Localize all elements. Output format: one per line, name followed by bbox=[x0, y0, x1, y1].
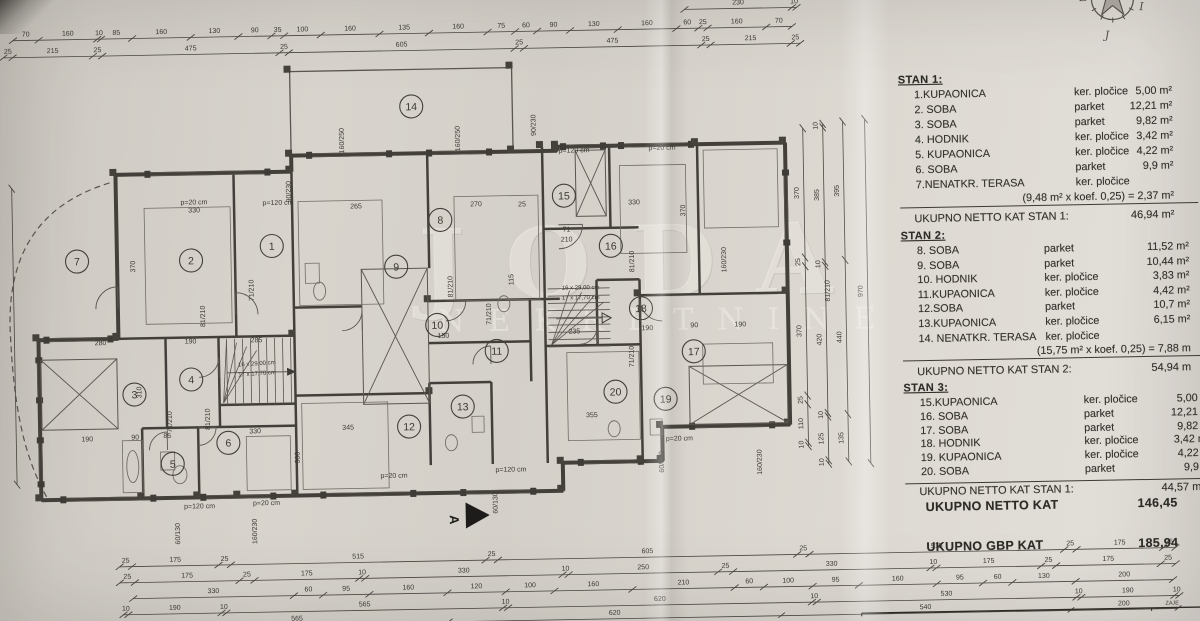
door-swing bbox=[446, 300, 466, 320]
plan-text: 120 bbox=[471, 583, 483, 590]
plan-text: p=20 cm bbox=[666, 435, 693, 442]
wall-line bbox=[544, 227, 639, 229]
stan-total-value: 46,94 m² bbox=[1131, 208, 1175, 221]
window-jamb bbox=[264, 169, 270, 176]
room-name: 8. SOBA bbox=[917, 244, 959, 257]
plan-text: 230 bbox=[732, 0, 744, 7]
wall-line bbox=[556, 318, 602, 319]
window-jamb bbox=[43, 337, 49, 344]
plan-text: 60 bbox=[745, 578, 753, 585]
plan-text: 330 bbox=[458, 567, 470, 574]
room-area: 5,00 m² bbox=[1135, 84, 1172, 97]
plan-text: 160/230 bbox=[757, 449, 764, 475]
plan-text: 150 bbox=[438, 333, 450, 340]
plan-text: 160 bbox=[587, 581, 599, 588]
plan-text: 71 bbox=[563, 227, 571, 234]
plan-text: 16 x 29,00 cm bbox=[562, 285, 600, 292]
room-area: 9,9 m² bbox=[1143, 159, 1174, 172]
furniture-outline bbox=[703, 343, 774, 384]
wall-line bbox=[429, 341, 531, 343]
total-label: UKUPNO NETTO KAT bbox=[926, 498, 1059, 514]
pillar-block bbox=[233, 491, 240, 498]
sink-fixture bbox=[305, 263, 319, 283]
furniture-outline bbox=[703, 149, 778, 228]
stan-section-1: STAN 1:1.KUPAONICAker. pločice5,00 m²2. … bbox=[898, 69, 1199, 228]
plan-text: 71/210 bbox=[167, 411, 174, 433]
svg-text:12: 12 bbox=[403, 421, 415, 433]
pillar-block bbox=[551, 141, 558, 148]
plan-text: 10 bbox=[818, 411, 825, 419]
plan-text: 10 bbox=[810, 593, 818, 600]
plan-text: 10 bbox=[122, 606, 130, 613]
window-jamb bbox=[578, 459, 584, 466]
room-number-20: 20 bbox=[604, 380, 627, 403]
stan-total-value: 44,57 m bbox=[1161, 481, 1200, 494]
plan-text: 475 bbox=[185, 45, 197, 52]
window-jamb bbox=[486, 148, 492, 155]
floor-material: parket bbox=[1044, 257, 1074, 270]
stair-direction-arrow bbox=[602, 313, 611, 323]
pillar-block bbox=[32, 334, 39, 341]
plan-text: 110 bbox=[798, 418, 805, 429]
plan-text: p=20 cm bbox=[180, 199, 207, 206]
floor-material: ker. pločice bbox=[1084, 435, 1138, 448]
room-name: 11.KUPAONICA bbox=[918, 288, 995, 301]
plan-text: 25 bbox=[280, 44, 288, 51]
room-area: 10,44 m² bbox=[1146, 255, 1189, 268]
room-number-5: 5 bbox=[161, 452, 184, 475]
plan-text: 160/230 bbox=[721, 247, 728, 273]
room-area: 10,7 m² bbox=[1153, 299, 1190, 312]
wall-line bbox=[220, 404, 296, 405]
plan-text: 25 bbox=[123, 574, 131, 581]
plan-text: 100 bbox=[297, 26, 309, 33]
room-name: 6. SOBA bbox=[915, 163, 957, 176]
plan-text: 330 bbox=[826, 561, 838, 568]
room-name: 1.KUPAONICA bbox=[914, 88, 986, 101]
plan-text: 190 bbox=[185, 338, 197, 345]
wall-line bbox=[429, 382, 491, 383]
plan-text: 190 bbox=[169, 605, 181, 612]
sanitary-fixture bbox=[445, 435, 457, 451]
plan-text: 190 bbox=[81, 436, 93, 443]
floor-material: ker. pločice bbox=[1075, 130, 1129, 143]
room-name: 17. SOBA bbox=[920, 424, 968, 437]
room-number-1: 1 bbox=[260, 234, 283, 257]
plan-text: 420 bbox=[816, 334, 823, 346]
plan-text: 100 bbox=[782, 577, 794, 584]
area-summary-panel: STAN 1:1.KUPAONICAker. pločice5,00 m²2. … bbox=[896, 0, 1200, 615]
plan-text: 160 bbox=[641, 20, 653, 27]
plan-text: 620 bbox=[654, 596, 666, 603]
plan-text: 10 bbox=[220, 604, 228, 611]
furniture-outline bbox=[246, 436, 291, 491]
door-swing bbox=[579, 326, 597, 344]
room-number-7: 7 bbox=[65, 250, 88, 273]
floor-material: ker. pločice bbox=[1045, 315, 1099, 328]
room-area: 4,42 m² bbox=[1153, 284, 1190, 297]
furniture-outline bbox=[298, 200, 384, 306]
plan-text: 71/210 bbox=[629, 346, 636, 368]
sanitary-fixture bbox=[126, 450, 139, 482]
plan-text: 25 bbox=[702, 36, 710, 43]
plan-text: 25 bbox=[791, 34, 799, 41]
room-area: 3,42 m² bbox=[1136, 129, 1173, 142]
wall-line bbox=[530, 299, 532, 381]
wall-line bbox=[38, 339, 118, 340]
plan-text: 115 bbox=[508, 274, 515, 285]
floor-material: parket bbox=[1075, 116, 1105, 129]
plan-text: 370 bbox=[130, 261, 137, 273]
plan-text: 10 bbox=[95, 30, 103, 37]
plan-text: 90 bbox=[251, 27, 259, 34]
room-number-8: 8 bbox=[429, 208, 452, 231]
room-area: 4,22 m bbox=[1178, 447, 1200, 460]
pillar-block bbox=[291, 490, 298, 497]
plan-text: 190 bbox=[641, 325, 653, 332]
room-area: 9,82 m bbox=[1177, 419, 1200, 432]
pillar-block bbox=[779, 137, 786, 144]
plan-text: 215 bbox=[745, 35, 757, 42]
room-name: 10. HODNIK bbox=[917, 273, 977, 286]
plan-text: 190 bbox=[734, 321, 746, 328]
plan-text: 10 bbox=[502, 599, 510, 606]
stan-section-2: STAN 2:8. SOBAparket11,52 m²9. SOBAparke… bbox=[901, 225, 1200, 382]
wall-line bbox=[542, 147, 548, 463]
plan-text: 25 bbox=[795, 258, 802, 266]
pillar-block bbox=[285, 150, 292, 157]
room-name: 2. SOBA bbox=[914, 103, 956, 116]
window-jamb bbox=[600, 142, 606, 149]
plan-text: 125 bbox=[818, 433, 825, 445]
stan-total-value: 54,94 m bbox=[1151, 361, 1191, 374]
plan-text: 175 bbox=[169, 557, 181, 564]
plan-text: 440 bbox=[836, 331, 843, 343]
room-name: 9. SOBA bbox=[917, 259, 959, 272]
plan-text: 95 bbox=[342, 586, 350, 593]
plan-text: 565 bbox=[359, 601, 371, 608]
plan-text: 330 bbox=[208, 588, 220, 595]
floor-material: ker. pločice bbox=[1076, 175, 1130, 188]
svg-text:19: 19 bbox=[660, 394, 672, 406]
svg-text:18: 18 bbox=[635, 303, 647, 315]
room-area: 4,22 m² bbox=[1136, 144, 1173, 157]
room-number-15: 15 bbox=[552, 184, 575, 207]
plan-text: 620 bbox=[609, 610, 621, 617]
window-jamb bbox=[60, 496, 66, 503]
room-name: 18. HODNIK bbox=[920, 437, 980, 450]
plan-text: 160/250 bbox=[455, 126, 462, 152]
pillar-block bbox=[137, 492, 144, 499]
room-area: 6,15 m² bbox=[1154, 313, 1191, 326]
plan-text: 160 bbox=[452, 23, 464, 30]
floor-material: parket bbox=[1044, 242, 1074, 255]
plan-text: p=20 cm bbox=[380, 473, 407, 480]
svg-text:7: 7 bbox=[74, 256, 80, 268]
wall-line bbox=[596, 279, 639, 280]
plan-text: 60 bbox=[304, 586, 312, 593]
plan-text: 25 bbox=[93, 47, 101, 54]
svg-text:11: 11 bbox=[491, 346, 502, 358]
plan-text: 25 bbox=[122, 558, 130, 565]
plan-text: 90/230 bbox=[286, 181, 293, 203]
plan-text: 565 bbox=[291, 615, 303, 621]
window-jamb bbox=[618, 142, 624, 149]
wall-line bbox=[296, 393, 430, 395]
room-name: 15.KUPAONICA bbox=[920, 396, 998, 409]
plan-text: 71/210 bbox=[486, 303, 493, 325]
pillar-block bbox=[109, 169, 116, 176]
plan-text: 75 bbox=[497, 23, 505, 30]
plan-text: 300 bbox=[295, 452, 302, 464]
room-name: 12.SOBA bbox=[918, 303, 963, 316]
room-number-9: 9 bbox=[384, 255, 407, 278]
plan-text: 60/130 bbox=[175, 523, 182, 545]
room-name: 20. SOBA bbox=[921, 465, 969, 478]
wall-line bbox=[697, 144, 700, 294]
plan-text: 160 bbox=[344, 25, 356, 32]
room-area: 12,21 m bbox=[1171, 406, 1200, 419]
plan-text: 81/210 bbox=[629, 251, 636, 273]
plan-text: 215 bbox=[47, 48, 59, 55]
wall-line bbox=[294, 306, 362, 307]
plan-text: 25 bbox=[799, 545, 807, 552]
plan-text: 130 bbox=[588, 21, 600, 28]
pillar-block bbox=[557, 457, 564, 464]
plan-text: 25 bbox=[221, 556, 229, 563]
wall-line bbox=[685, 7, 797, 9]
plan-text: 81/210 bbox=[200, 305, 207, 327]
plan-text: 310 bbox=[136, 386, 143, 398]
svg-text:14: 14 bbox=[405, 101, 417, 113]
plan-text: 25 bbox=[518, 201, 526, 208]
plan-text: 250 bbox=[637, 564, 649, 571]
pillar-block bbox=[691, 138, 698, 145]
window-jamb bbox=[386, 150, 392, 157]
pillar-block bbox=[285, 166, 292, 173]
plan-text: 235 bbox=[568, 328, 580, 335]
total-value: 185,94 bbox=[1138, 535, 1178, 550]
stan-total-label: UKUPNO NETTO KAT STAN 2: bbox=[917, 364, 1072, 379]
plan-text: 605 bbox=[642, 548, 654, 555]
pillar-block bbox=[536, 141, 543, 148]
plan-text: 160/230 bbox=[252, 519, 259, 545]
svg-text:13: 13 bbox=[457, 401, 469, 413]
svg-text:9: 9 bbox=[393, 261, 399, 273]
room-area: 12,21 m² bbox=[1130, 99, 1173, 112]
wall-line bbox=[548, 324, 610, 325]
photographed-floor-plan-sheet: JODA NEKRETNINE 16 x 29,00 cm17 x 17,70 … bbox=[0, 0, 1200, 621]
svg-text:1: 1 bbox=[269, 241, 275, 253]
room-number-14: 14 bbox=[400, 95, 423, 118]
window-jamb bbox=[200, 494, 206, 501]
floor-material: ker. pločice bbox=[1044, 271, 1098, 284]
furniture-outline bbox=[454, 195, 540, 301]
total-label: UKUPNO GBP KAT bbox=[926, 538, 1043, 554]
door-swing bbox=[342, 310, 362, 330]
svg-text:5: 5 bbox=[170, 459, 176, 471]
plan-text: 210 bbox=[678, 579, 690, 586]
svg-text:4: 4 bbox=[188, 374, 194, 386]
wall-line bbox=[198, 427, 199, 497]
stan-total-label: UKUPNO NETTO KAT STAN 1: bbox=[919, 483, 1074, 498]
room-number-17: 17 bbox=[682, 340, 705, 363]
plan-text: 10 bbox=[358, 569, 366, 576]
room-name: 16. SOBA bbox=[920, 410, 968, 423]
plan-text: p=120 cm bbox=[184, 503, 215, 511]
pillar-block bbox=[637, 455, 644, 462]
plan-text: 17 x 17,70 cm bbox=[562, 295, 600, 302]
plan-text: 160 bbox=[62, 31, 74, 38]
window-jamb bbox=[782, 170, 789, 176]
window-jamb bbox=[426, 150, 432, 157]
sanitary-fixture bbox=[498, 296, 510, 312]
room-number-12: 12 bbox=[397, 415, 420, 438]
section-arrow bbox=[466, 502, 490, 528]
floor-material: ker. pločice bbox=[1084, 393, 1138, 406]
floor-material: ker. pločice bbox=[1045, 329, 1099, 342]
plan-text: 10 bbox=[562, 566, 570, 573]
plan-text: 100 bbox=[524, 582, 536, 589]
pillar-block bbox=[288, 330, 295, 337]
plan-text: 25 bbox=[515, 39, 523, 46]
room-number-13: 13 bbox=[451, 395, 474, 418]
room-number-2: 2 bbox=[179, 249, 202, 272]
stan-section-3: STAN 3:15.KUPAONICAker. pločice5,00 m16.… bbox=[903, 377, 1200, 501]
floor-material: parket bbox=[1045, 301, 1075, 314]
plan-text: 160 bbox=[402, 584, 414, 591]
plan-text: 175 bbox=[181, 573, 193, 580]
plan-text: 95 bbox=[832, 577, 840, 584]
floor-material: parket bbox=[1075, 161, 1105, 174]
window-jamb bbox=[306, 152, 312, 159]
wall-line bbox=[865, 119, 871, 463]
stan-total-label: UKUPNO NETTO KAT STAN 1: bbox=[914, 210, 1069, 225]
plan-text: 270 bbox=[470, 201, 482, 208]
room-number-6: 6 bbox=[217, 431, 240, 454]
plan-text: 370 bbox=[796, 325, 803, 337]
furniture-outline bbox=[122, 440, 143, 492]
plan-text: 70 bbox=[775, 18, 783, 25]
wall-line bbox=[41, 491, 563, 501]
floor-material: parket bbox=[1085, 463, 1115, 476]
plan-text: 475 bbox=[607, 38, 619, 45]
window-jamb bbox=[37, 437, 44, 443]
plan-text: 81/210 bbox=[447, 276, 454, 298]
plan-text: 210 bbox=[561, 236, 573, 243]
svg-text:15: 15 bbox=[558, 190, 570, 202]
pillar-block bbox=[782, 287, 789, 294]
total-gbp-kat: UKUPNO GBP KAT185,94 bbox=[906, 535, 1200, 540]
plan-text: p=120 cm bbox=[495, 466, 526, 474]
wall-line bbox=[218, 337, 220, 427]
pillar-block bbox=[557, 485, 564, 492]
window-jamb bbox=[144, 171, 150, 178]
plan-text: 10 bbox=[813, 122, 820, 130]
wall-line bbox=[843, 122, 849, 462]
room-area: 5,00 m bbox=[1177, 392, 1200, 405]
pillar-block bbox=[505, 62, 512, 69]
room-area: 3,83 m² bbox=[1153, 269, 1190, 282]
plan-text: 16 x 29,00 cm bbox=[238, 360, 276, 369]
room-area: 9,82 m² bbox=[1136, 114, 1173, 127]
room-number-4: 4 bbox=[179, 368, 202, 391]
plan-text: 605 bbox=[396, 41, 408, 48]
wall-line bbox=[640, 293, 788, 296]
plan-text: 25 bbox=[699, 19, 707, 26]
svg-text:6: 6 bbox=[225, 438, 231, 450]
plan-text: 265 bbox=[350, 203, 362, 210]
room-name: 5. KUPAONICA bbox=[915, 148, 990, 161]
wall-line bbox=[12, 189, 17, 485]
plan-text: 60 bbox=[683, 19, 691, 26]
plan-text: 17 x 17,70 cm bbox=[238, 370, 276, 379]
section-letter: A bbox=[447, 515, 462, 525]
plan-text: 70 bbox=[22, 31, 30, 38]
plan-text: 85 bbox=[163, 433, 171, 440]
plan-text: 35 bbox=[274, 27, 282, 34]
plan-text: 280 bbox=[95, 340, 107, 347]
plan-text: 60/130 bbox=[659, 451, 666, 473]
wall-line bbox=[609, 146, 611, 228]
door-swing bbox=[95, 287, 117, 309]
window-jamb bbox=[270, 492, 276, 499]
room-name: 19. KUPAONICA bbox=[921, 451, 1002, 464]
floor-material: parket bbox=[1084, 421, 1114, 434]
floor-material: ker. pločice bbox=[1085, 448, 1139, 461]
plan-text: 90 bbox=[131, 434, 139, 441]
plan-text: 515 bbox=[352, 553, 364, 560]
wall-line bbox=[115, 175, 118, 339]
plan-text: 25 bbox=[798, 396, 805, 404]
wall-line bbox=[548, 310, 610, 311]
window-jamb bbox=[320, 492, 326, 499]
plan-text: 970 bbox=[858, 285, 865, 297]
room-number-19: 19 bbox=[654, 387, 677, 410]
plan-text: 60 bbox=[522, 22, 530, 29]
plan-text: 60/130 bbox=[492, 492, 499, 514]
plan-text: 90 bbox=[690, 322, 698, 329]
floor-material: ker. pločice bbox=[1074, 85, 1128, 98]
window-jamb bbox=[38, 481, 45, 487]
floor-material: parket bbox=[1074, 101, 1104, 114]
svg-text:17: 17 bbox=[688, 346, 700, 358]
wall-line bbox=[427, 153, 429, 268]
wall-line bbox=[491, 382, 493, 464]
window-jamb bbox=[410, 490, 416, 497]
plan-text: p=20 cm bbox=[253, 500, 280, 507]
plan-text: 10 bbox=[815, 260, 822, 268]
plan-text: 345 bbox=[342, 425, 354, 432]
sanitary-fixture bbox=[313, 282, 325, 300]
sink-fixture bbox=[472, 416, 484, 432]
svg-text:20: 20 bbox=[610, 386, 622, 398]
plan-text: 160/250 bbox=[339, 128, 346, 154]
wall-line bbox=[41, 359, 118, 430]
room-area: 3,42 m² bbox=[1174, 433, 1200, 446]
svg-text:10: 10 bbox=[431, 320, 443, 332]
room-number-16: 16 bbox=[599, 234, 622, 257]
plan-text: 10 bbox=[790, 0, 798, 5]
plan-text: 285 bbox=[251, 337, 263, 344]
pillar-block bbox=[35, 494, 42, 501]
plan-text: 135 bbox=[398, 24, 410, 31]
plan-text: 81/210 bbox=[205, 408, 212, 430]
plan-text: 130 bbox=[209, 28, 221, 35]
pillar-block bbox=[283, 66, 290, 73]
svg-text:2: 2 bbox=[188, 255, 194, 267]
window-jamb bbox=[150, 495, 156, 502]
